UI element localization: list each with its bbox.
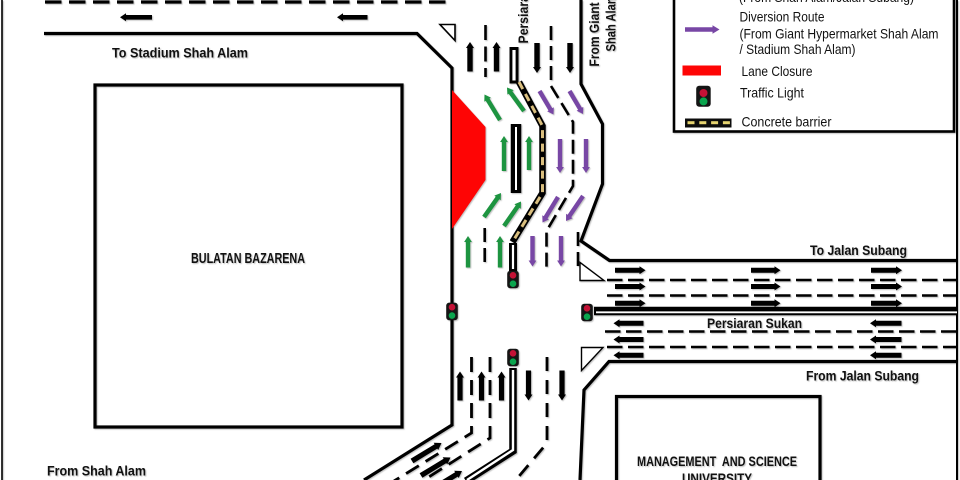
svg-text:Persiaran: Persiaran — [515, 0, 531, 44]
svg-text:From Shah Alam: From Shah Alam — [47, 463, 146, 479]
svg-text:From Jalan Subang: From Jalan Subang — [806, 368, 919, 384]
svg-text:Concrete barrier: Concrete barrier — [742, 114, 832, 130]
svg-text:MANAGEMENT AND SCIENCE: MANAGEMENT AND SCIENCE — [637, 453, 797, 469]
svg-text:/ Stadium Shah Alam): / Stadium Shah Alam) — [740, 41, 856, 57]
svg-text:Diversion Route: Diversion Route — [740, 9, 825, 25]
svg-text:To Stadium Shah Alam: To Stadium Shah Alam — [112, 45, 248, 61]
svg-text:Persiaran Sukan: Persiaran Sukan — [707, 315, 802, 331]
svg-text:(From Shah Alam/Jalan Subang): (From Shah Alam/Jalan Subang) — [739, 0, 914, 5]
svg-text:Lane Closure: Lane Closure — [742, 63, 813, 79]
svg-text:From Giant Hypermarket: From Giant Hypermarket — [586, 0, 602, 67]
svg-text:Traffic Light: Traffic Light — [740, 85, 804, 101]
svg-text:(From Giant Hypermarket Shah A: (From Giant Hypermarket Shah Alam — [740, 25, 939, 41]
svg-text:Shah Alam): Shah Alam) — [603, 0, 619, 52]
svg-text:BULATAN BAZARENA: BULATAN BAZARENA — [191, 250, 305, 267]
svg-text:To Jalan Subang: To Jalan Subang — [810, 242, 907, 258]
svg-text:UNIVERSITY: UNIVERSITY — [682, 470, 753, 480]
